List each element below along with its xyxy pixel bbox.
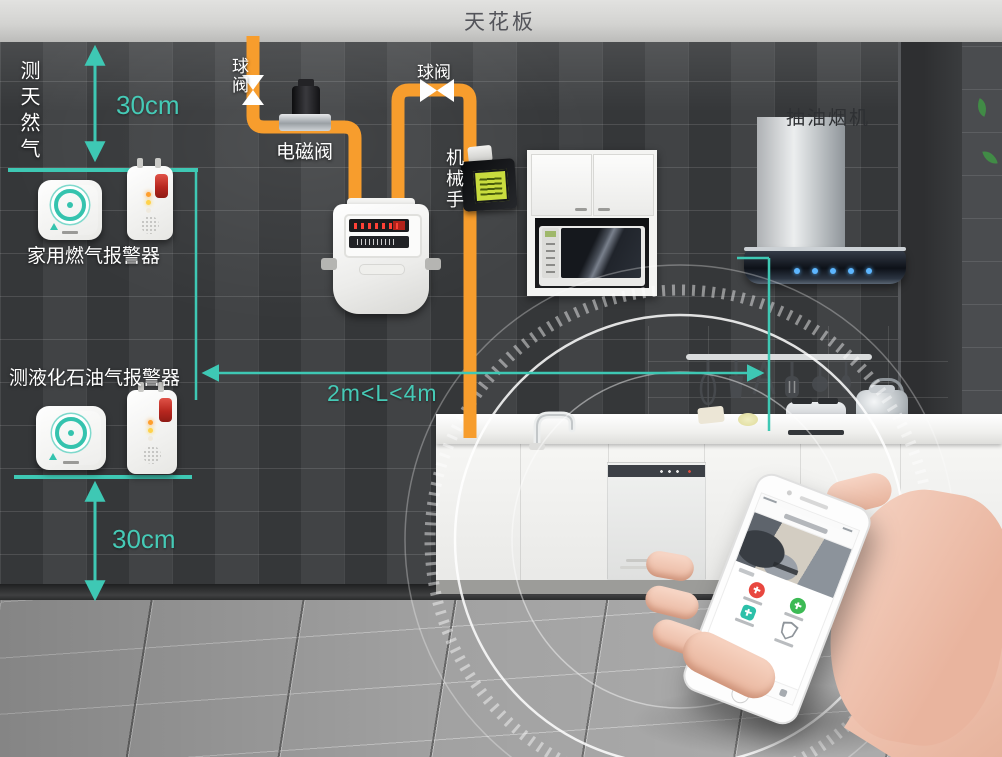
ball-valve-right-label: 球阀 <box>417 58 451 83</box>
lpg-alarm-label: 测液化石油气报警器 <box>9 363 180 390</box>
manipulator-label: 机械手 <box>441 148 467 211</box>
top-clearance-label: 30cm <box>116 90 180 121</box>
tab-icon <box>778 688 787 697</box>
shield-inner <box>780 621 798 640</box>
ceiling-label: 天花板 <box>464 6 536 36</box>
distance-annotation: 2m<L<4m <box>327 380 438 407</box>
manipulator-lcd <box>473 169 509 203</box>
icon-glyph <box>744 608 753 617</box>
range-hood-label: 抽油烟机 <box>786 103 870 130</box>
phone-camera <box>786 490 792 496</box>
kitchen-gas-installation-diagram: 天花板 测天然气 30cm 球阀 球阀 电磁阀 机械手 家用燃气报警器 测液化石… <box>0 0 1002 757</box>
finger <box>644 549 696 583</box>
bottom-clearance-label: 30cm <box>112 524 176 555</box>
measure-natural-gas-label: 测天然气 <box>14 60 43 164</box>
solenoid-valve-label: 电磁阀 <box>276 137 333 164</box>
banner-caption-blur <box>772 562 798 576</box>
icon-glyph <box>752 586 761 595</box>
finger <box>643 583 702 622</box>
icon-glyph <box>793 601 802 610</box>
ball-valve-left-label: 球阀 <box>226 57 251 95</box>
household-alarm-label: 家用燃气报警器 <box>27 241 160 268</box>
icon-label-blur <box>774 638 794 648</box>
